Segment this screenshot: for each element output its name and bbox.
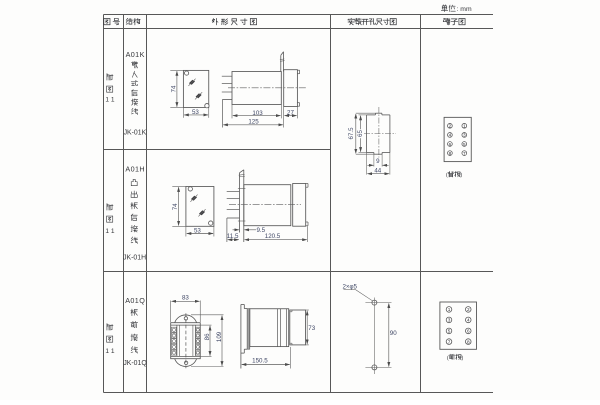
svg-text:109: 109 bbox=[216, 331, 223, 342]
svg-text:1 1: 1 1 bbox=[105, 97, 114, 104]
svg-text:(: ( bbox=[446, 173, 448, 179]
svg-text:103: 103 bbox=[252, 110, 263, 117]
svg-text:2: 2 bbox=[449, 124, 452, 129]
svg-text:A01Q: A01Q bbox=[125, 296, 145, 305]
svg-text:73: 73 bbox=[308, 325, 315, 332]
svg-text:65: 65 bbox=[357, 130, 364, 137]
svg-text:5: 5 bbox=[463, 142, 466, 147]
svg-text:11.5: 11.5 bbox=[227, 233, 239, 240]
svg-text:A01K: A01K bbox=[126, 50, 145, 59]
svg-text:4: 4 bbox=[449, 133, 452, 138]
svg-text:1: 1 bbox=[448, 307, 451, 312]
svg-text:): ) bbox=[460, 173, 462, 179]
svg-text:6: 6 bbox=[467, 329, 470, 334]
svg-text:1 1: 1 1 bbox=[105, 348, 114, 355]
svg-text:6: 6 bbox=[449, 142, 452, 147]
svg-text:A01H: A01H bbox=[125, 165, 145, 174]
svg-text:7: 7 bbox=[448, 339, 451, 344]
svg-text:2: 2 bbox=[467, 307, 470, 312]
svg-text:27: 27 bbox=[287, 110, 294, 117]
svg-text:5: 5 bbox=[448, 329, 451, 334]
svg-text:150.5: 150.5 bbox=[252, 358, 268, 365]
svg-text:44: 44 bbox=[374, 168, 381, 175]
svg-text:74: 74 bbox=[172, 203, 179, 210]
svg-text:120.5: 120.5 bbox=[265, 233, 281, 240]
svg-text:1: 1 bbox=[463, 124, 466, 129]
svg-text:74: 74 bbox=[171, 85, 178, 92]
svg-text:83: 83 bbox=[182, 294, 189, 301]
svg-text:125: 125 bbox=[248, 118, 259, 125]
svg-text:67.5: 67.5 bbox=[348, 127, 355, 140]
svg-text:JK-01Q: JK-01Q bbox=[123, 360, 147, 367]
svg-text:8: 8 bbox=[449, 151, 452, 156]
svg-text:86: 86 bbox=[204, 333, 211, 340]
svg-text:: mm: : mm bbox=[457, 6, 472, 13]
svg-text:JK-01H: JK-01H bbox=[123, 254, 146, 261]
svg-text:53: 53 bbox=[192, 109, 199, 116]
svg-text:8: 8 bbox=[467, 339, 470, 344]
svg-text:9: 9 bbox=[376, 158, 380, 165]
svg-text:90: 90 bbox=[390, 330, 397, 337]
svg-text:4: 4 bbox=[467, 318, 470, 323]
svg-text:3: 3 bbox=[448, 318, 451, 323]
svg-text:3: 3 bbox=[463, 133, 466, 138]
svg-text:7: 7 bbox=[463, 151, 466, 156]
svg-text:): ) bbox=[461, 356, 463, 362]
svg-text:1 1: 1 1 bbox=[105, 228, 114, 235]
svg-text:JK-01K: JK-01K bbox=[124, 130, 147, 137]
svg-text:53: 53 bbox=[194, 227, 201, 234]
svg-text:(: ( bbox=[447, 356, 449, 362]
